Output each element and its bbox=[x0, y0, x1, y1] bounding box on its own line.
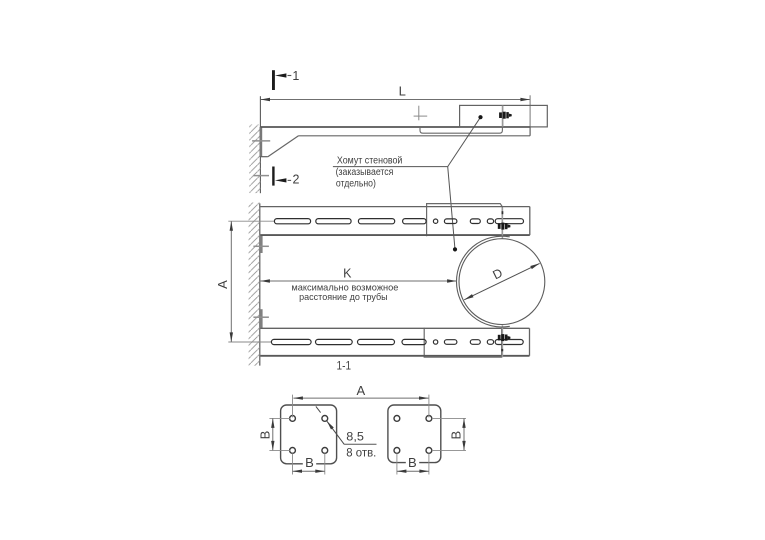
svg-text:A: A bbox=[215, 280, 230, 289]
svg-text:(заказывается: (заказывается bbox=[336, 167, 394, 178]
svg-text:B: B bbox=[305, 455, 314, 470]
svg-text:B: B bbox=[448, 431, 463, 440]
svg-text:K: K bbox=[343, 266, 352, 280]
svg-text:максимально возможное: максимально возможное bbox=[291, 282, 398, 292]
svg-text:2: 2 bbox=[293, 172, 300, 186]
svg-text:B: B bbox=[408, 455, 417, 470]
svg-text:расстояние до трубы: расстояние до трубы bbox=[299, 292, 388, 302]
svg-text:A: A bbox=[356, 383, 365, 398]
svg-text:B: B bbox=[258, 431, 273, 440]
svg-text:отдельно): отдельно) bbox=[336, 179, 376, 190]
svg-text:8 отв.: 8 отв. bbox=[346, 445, 376, 459]
svg-text:1: 1 bbox=[292, 69, 299, 83]
svg-text:1-1: 1-1 bbox=[337, 358, 352, 372]
svg-text:8,5: 8,5 bbox=[346, 429, 364, 443]
svg-text:Хомут стеновой: Хомут стеновой bbox=[337, 155, 403, 166]
svg-text:L: L bbox=[399, 83, 406, 98]
